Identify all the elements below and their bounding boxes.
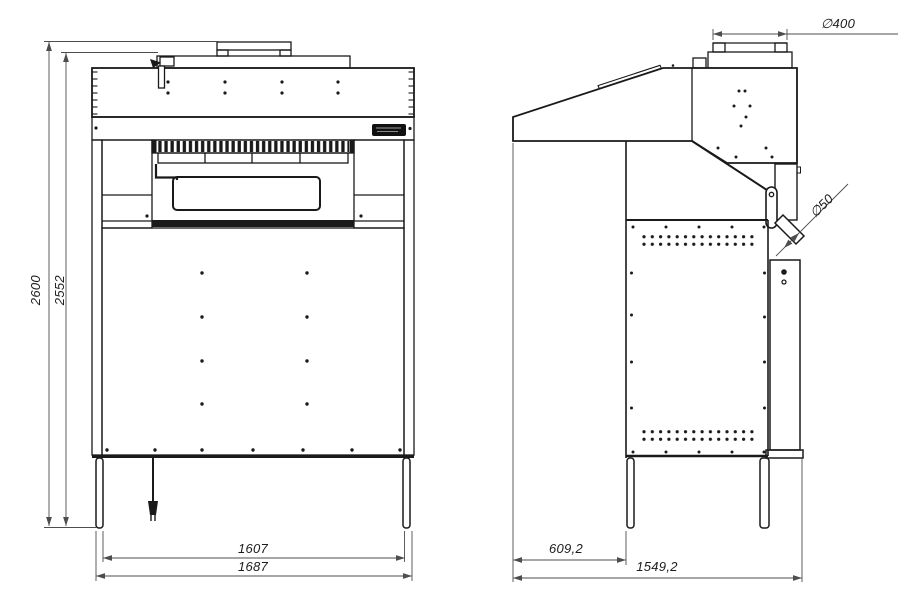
side-slope-lip [598, 65, 661, 88]
front-right-upright [404, 140, 414, 455]
front-fascia-band [92, 117, 414, 140]
side-baffle [692, 141, 770, 192]
dim-label-duct-diameter: ∅400 [806, 17, 870, 31]
front-grille-tray [158, 153, 348, 163]
front-louvre-grille [152, 140, 354, 153]
front-left-cheek [102, 140, 152, 228]
front-left-upright [92, 140, 102, 455]
side-front-leg [627, 458, 634, 528]
side-hood-outline [513, 68, 797, 163]
side-foot-plate [766, 450, 803, 458]
side-perforation-lower [640, 429, 756, 444]
dim-label-cabinet-height: 2552 [53, 270, 67, 310]
front-lamp-window [173, 177, 320, 210]
side-perforation-upper [640, 233, 756, 248]
dim-label-hood-overhang-depth: 609,2 [531, 542, 601, 556]
front-right-leg [403, 458, 410, 528]
front-view-linework [92, 42, 414, 528]
dim-label-leg-span-inner: 1607 [218, 542, 288, 556]
side-view-linework [513, 43, 804, 528]
side-rear-panel [770, 260, 800, 450]
front-duct-collar [217, 42, 291, 56]
technical-drawing-canvas: 2600 2552 1607 1687 ∅400 ∅50 609,2 1549,… [0, 0, 900, 609]
dim-label-overall-height: 2600 [29, 270, 43, 310]
side-rear-leg [760, 458, 769, 528]
side-duct-collar [708, 43, 792, 68]
front-lamp-cable [156, 164, 177, 180]
front-lower-panel [102, 228, 404, 455]
dim-label-overall-width: 1687 [218, 560, 288, 574]
side-top-mark [672, 64, 675, 67]
dim-label-overall-depth: 1549,2 [617, 560, 697, 574]
side-filter-box [775, 164, 797, 220]
brand-plate [372, 124, 406, 136]
front-left-leg [96, 458, 103, 528]
power-cord [148, 458, 158, 521]
drawing-linework [0, 0, 900, 609]
front-worktable-edge [152, 220, 354, 227]
front-hood-box [92, 68, 414, 117]
front-damper-latch [150, 57, 174, 88]
generated-decoration [46, 31, 802, 581]
front-top-plate [157, 56, 350, 68]
side-top-stub [693, 58, 706, 68]
